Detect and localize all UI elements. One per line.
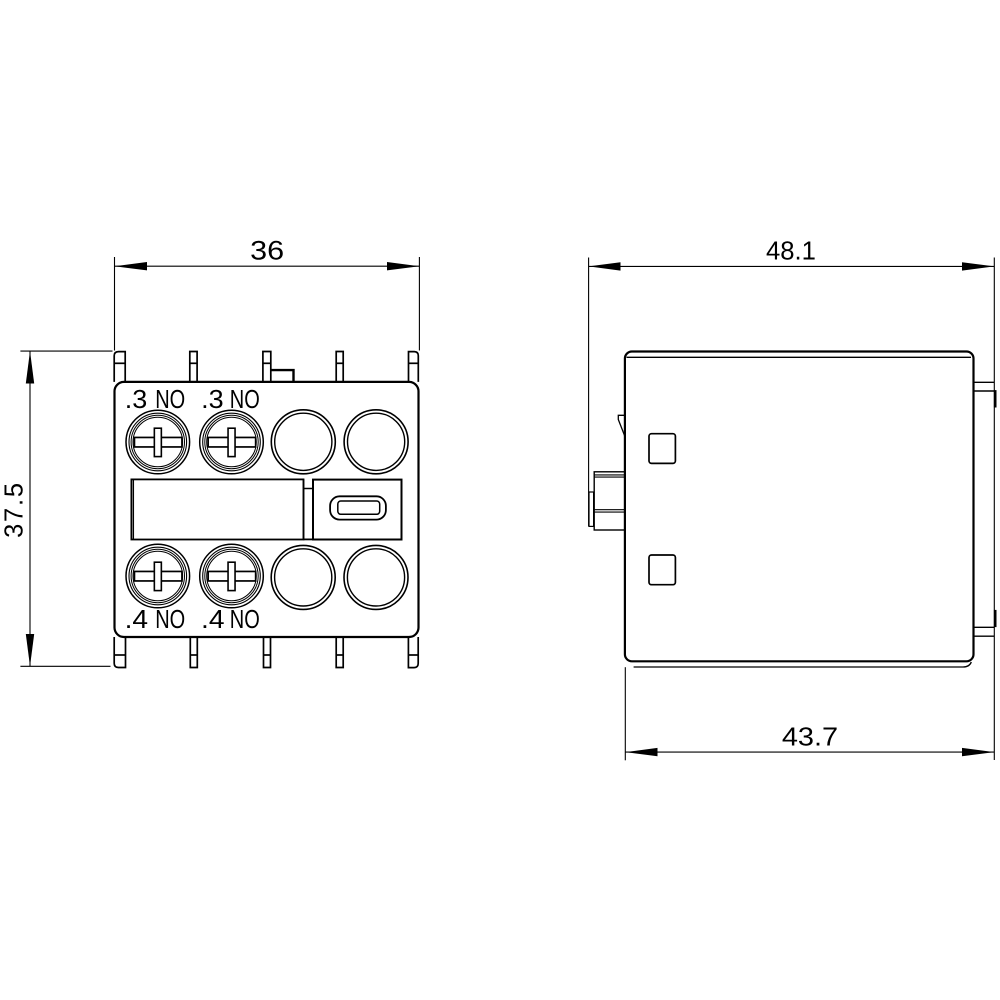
svg-text:NO: NO xyxy=(230,384,260,414)
svg-text:48.1: 48.1 xyxy=(766,237,816,265)
svg-text:.4: .4 xyxy=(201,604,225,634)
svg-text:NO: NO xyxy=(230,604,260,634)
svg-text:37.5: 37.5 xyxy=(1,481,29,538)
svg-text:.3: .3 xyxy=(125,384,148,414)
svg-text:.4: .4 xyxy=(125,604,149,634)
svg-text:NO: NO xyxy=(155,384,185,414)
svg-text:43.7: 43.7 xyxy=(782,723,838,751)
svg-text:36: 36 xyxy=(250,236,284,266)
svg-text:NO: NO xyxy=(155,604,185,634)
svg-text:.3: .3 xyxy=(201,384,224,414)
